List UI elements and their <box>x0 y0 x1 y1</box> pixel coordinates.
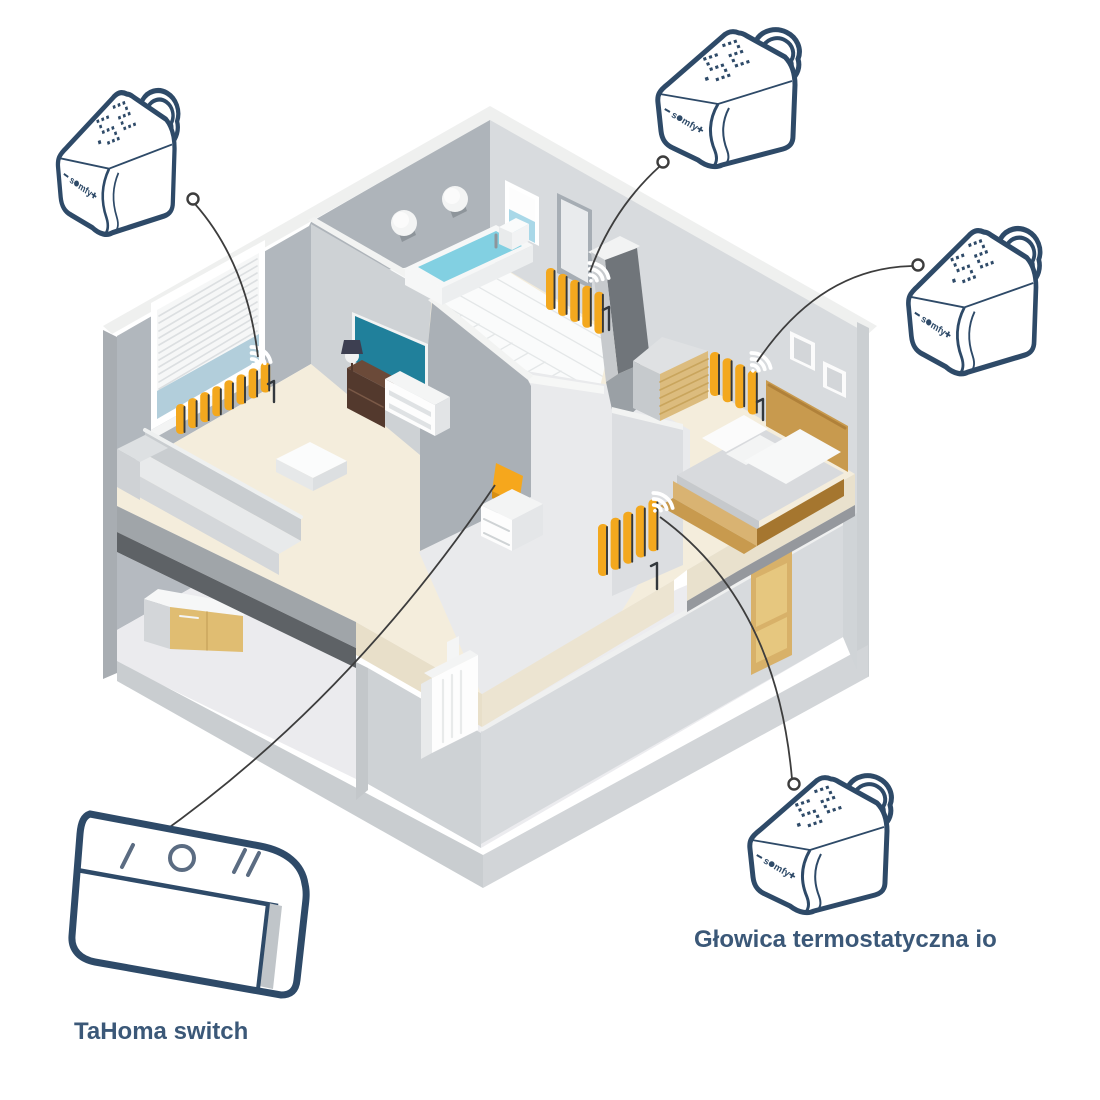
svg-text:Głowica termostatyczna io: Głowica termostatyczna io <box>694 926 997 953</box>
svg-text:TaHoma switch: TaHoma switch <box>74 1018 248 1045</box>
